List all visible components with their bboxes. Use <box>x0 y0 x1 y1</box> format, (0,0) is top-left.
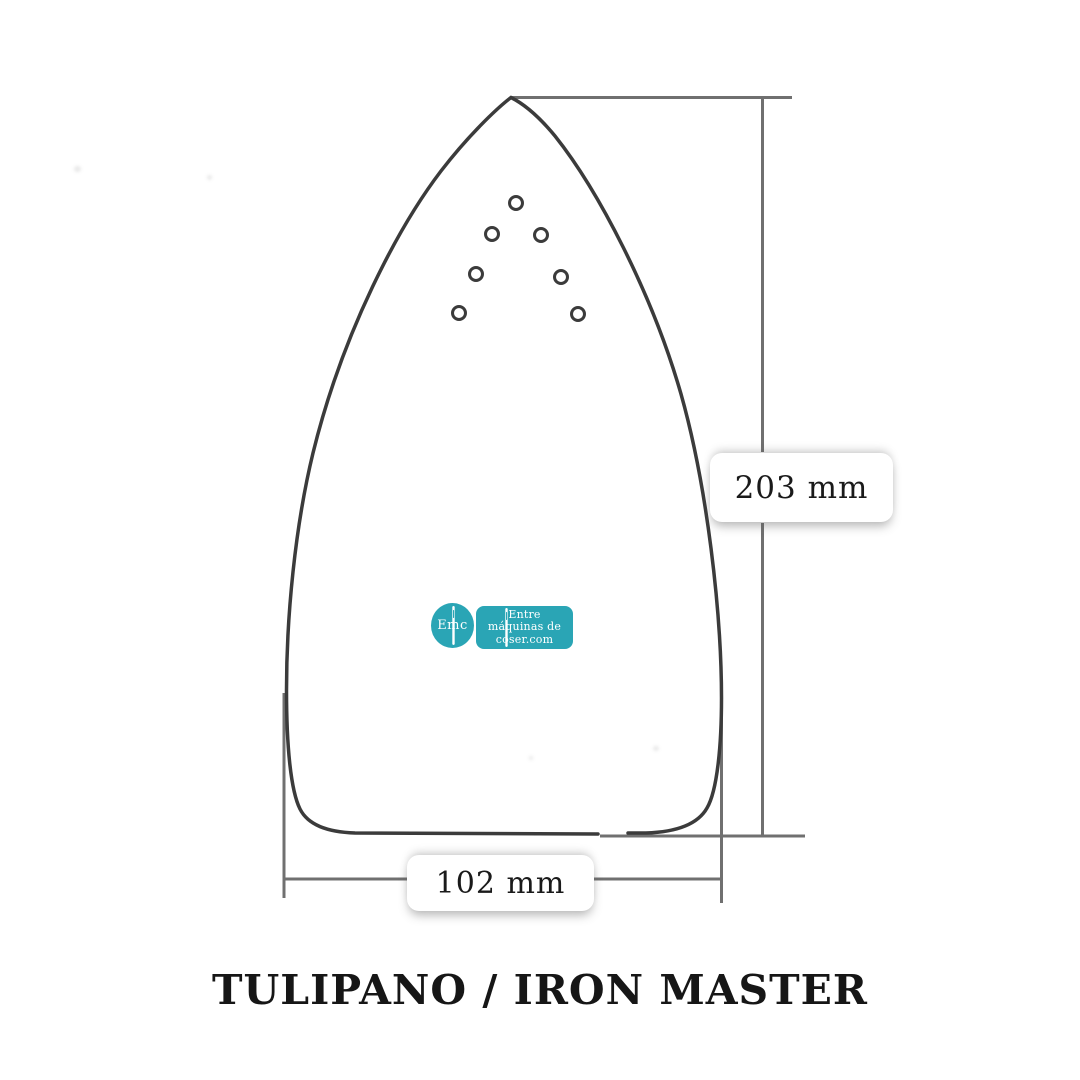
width-dimension-value: 102 mm <box>436 866 566 901</box>
logo-brand-badge: Entre máquinas de coser.com <box>476 606 573 649</box>
steam-hole <box>510 197 523 210</box>
logo-brand-line: máquinas de <box>488 621 561 634</box>
diagram-canvas: 203 mm 102 mm Emc Entre máquinas de cose… <box>0 0 1080 1080</box>
steam-holes <box>453 197 585 321</box>
logo-monogram-text: Emc <box>431 603 474 648</box>
height-dimension-label: 203 mm <box>710 453 893 522</box>
diagram-title: TULIPANO / IRON MASTER <box>0 966 1080 1014</box>
scan-speck <box>207 175 212 180</box>
logo-brand-line: coser.com <box>496 634 554 647</box>
steam-hole <box>555 271 568 284</box>
logo-brand-text: Entre máquinas de coser.com <box>476 606 573 649</box>
iron-soleplate-outline <box>287 98 722 835</box>
height-dimension-value: 203 mm <box>735 470 869 506</box>
steam-hole <box>572 308 585 321</box>
logo-monogram-badge: Emc <box>431 603 474 648</box>
steam-hole <box>535 229 548 242</box>
width-dimension-label: 102 mm <box>407 855 594 911</box>
brand-watermark: Emc Entre máquinas de coser.com <box>431 603 573 649</box>
scan-speck <box>529 756 533 760</box>
steam-hole <box>470 268 483 281</box>
iron-technical-drawing <box>0 0 1080 1080</box>
scan-speck <box>74 166 81 172</box>
scan-speck <box>653 746 659 751</box>
steam-hole <box>486 228 499 241</box>
steam-hole <box>453 307 466 320</box>
